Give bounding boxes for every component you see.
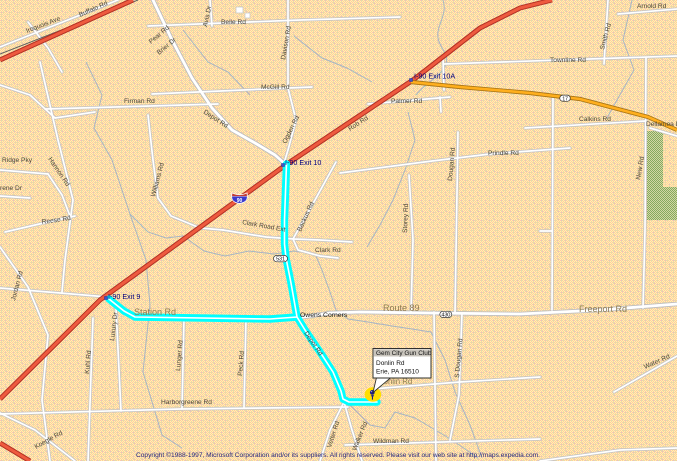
svg-text:I-90 Exit 10A: I-90 Exit 10A	[414, 72, 455, 81]
svg-text:Erie, PA 16510: Erie, PA 16510	[376, 369, 419, 376]
svg-text:Prindle Rd: Prindle Rd	[488, 150, 519, 157]
svg-text:Harborgreene Rd: Harborgreene Rd	[161, 399, 212, 406]
svg-text:I-90 Exit 10: I-90 Exit 10	[285, 158, 321, 167]
svg-text:Arnold Rd: Arnold Rd	[637, 3, 667, 10]
svg-text:Ridge Pky: Ridge Pky	[2, 157, 33, 164]
svg-text:Storey Rd: Storey Rd	[402, 203, 410, 233]
svg-text:Station Rd: Station Rd	[134, 307, 176, 317]
svg-text:Copyright ©1988-1997, Microsof: Copyright ©1988-1997, Microsoft Corporat…	[136, 451, 540, 459]
svg-text:Dellamea Dr: Dellamea Dr	[646, 121, 677, 128]
svg-text:Donlin Rd: Donlin Rd	[376, 360, 405, 367]
svg-text:Firman Rd: Firman Rd	[124, 98, 155, 105]
svg-text:Gem City Gun Club: Gem City Gun Club	[376, 350, 432, 357]
svg-text:rene Dr: rene Dr	[0, 185, 23, 192]
svg-text:Wildman Rd: Wildman Rd	[373, 438, 409, 445]
svg-text:Calkins Rd: Calkins Rd	[579, 116, 611, 123]
svg-text:90: 90	[237, 198, 243, 204]
svg-text:Freeport Rd: Freeport Rd	[579, 304, 627, 314]
svg-text:17: 17	[562, 96, 568, 102]
svg-text:McGill Rd: McGill Rd	[261, 84, 290, 91]
svg-text:531: 531	[276, 257, 285, 263]
svg-text:Route 89: Route 89	[383, 303, 420, 313]
svg-text:I-90 Exit 9: I-90 Exit 9	[108, 292, 140, 301]
svg-text:Clark Rd: Clark Rd	[315, 247, 341, 254]
svg-text:430: 430	[441, 313, 450, 319]
svg-text:Townline Rd: Townline Rd	[550, 57, 586, 64]
svg-text:Owens Corners: Owens Corners	[300, 312, 348, 319]
svg-text:Palmer Rd: Palmer Rd	[391, 98, 422, 105]
svg-text:Belle Rd: Belle Rd	[221, 19, 246, 26]
